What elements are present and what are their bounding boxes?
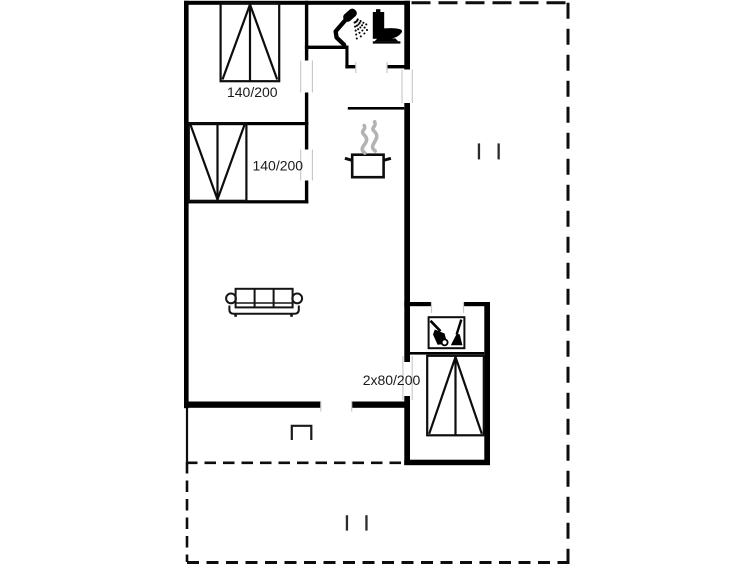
svg-text:140/200: 140/200 bbox=[252, 158, 303, 174]
svg-text:2x80/200: 2x80/200 bbox=[363, 372, 421, 388]
svg-text:140/200: 140/200 bbox=[227, 84, 278, 100]
